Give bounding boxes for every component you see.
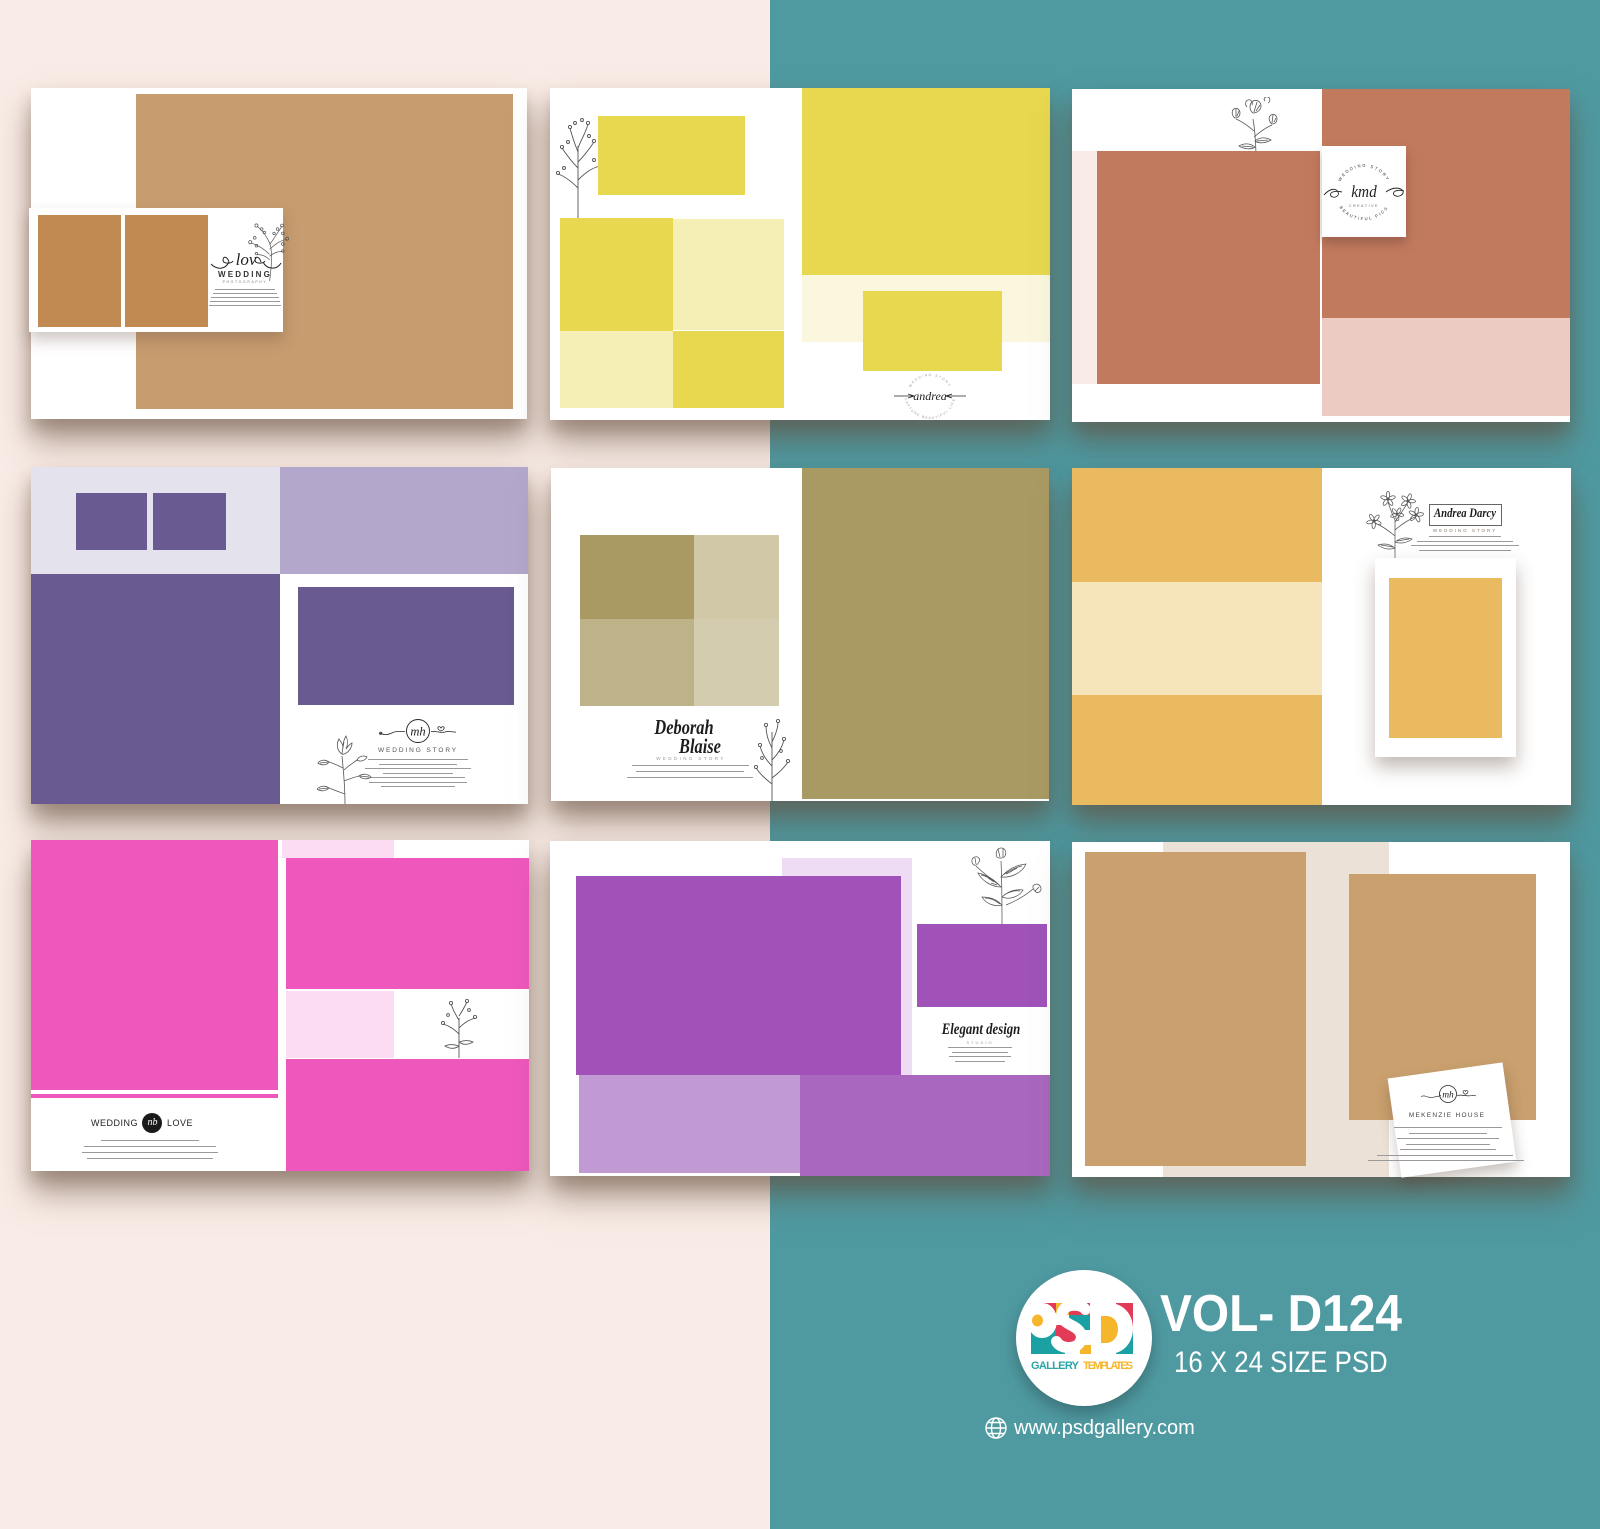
svg-text:WEDDING STORY: WEDDING STORY: [908, 373, 952, 388]
svg-text:GALLERY: GALLERY: [1031, 1360, 1080, 1371]
svg-text:WEDDING STORY: WEDDING STORY: [1337, 163, 1391, 182]
svg-text:lov: lov: [236, 250, 257, 269]
svg-text:kmd: kmd: [1351, 183, 1377, 201]
svg-text:andrea: andrea: [913, 389, 947, 403]
svg-text:mh: mh: [1442, 1091, 1454, 1101]
svg-text:TEMPLATES: TEMPLATES: [1083, 1360, 1133, 1371]
svg-text:CREATIVE: CREATIVE: [1349, 204, 1379, 208]
svg-text:mh: mh: [410, 725, 425, 739]
